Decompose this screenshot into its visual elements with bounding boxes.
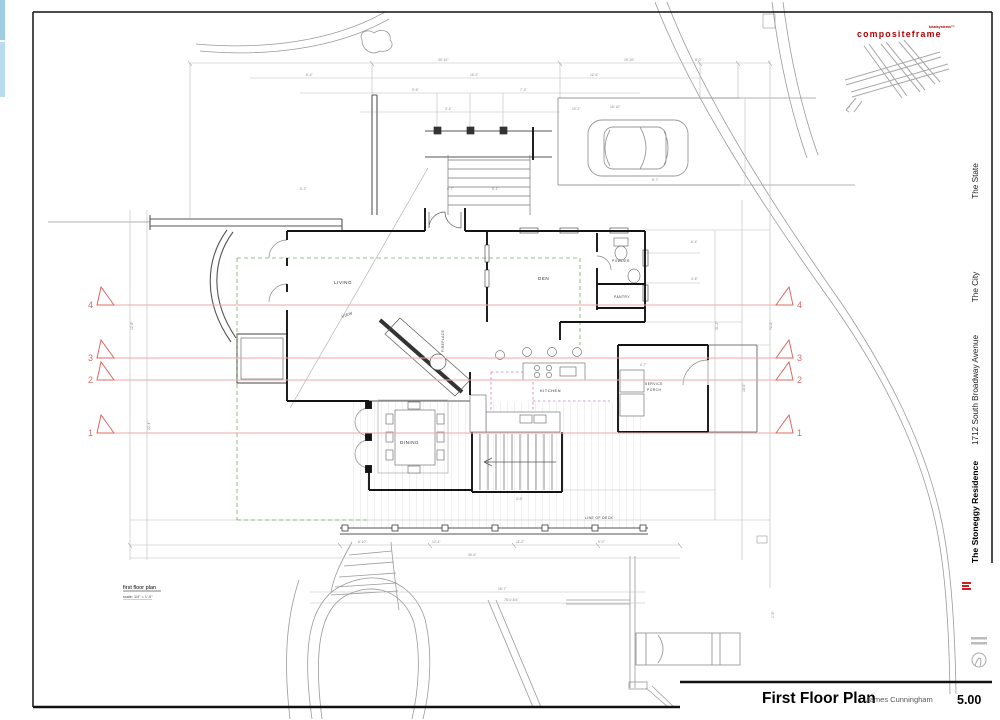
titleblock: First Floor Plan James Cunningham 5.00 — [762, 690, 981, 707]
section-number-right: 1 — [797, 428, 802, 438]
project-address: 1712 South Broadway Avenue — [971, 335, 980, 445]
dimension-label: 5'-2" — [300, 187, 308, 191]
plan-note-label: first floor plan — [123, 585, 156, 591]
washer — [620, 370, 644, 392]
dimension-label: 6'-10" — [358, 540, 367, 544]
dimension-label: 9'-6" — [412, 88, 420, 92]
dimension-label: 12'-6" — [590, 73, 599, 77]
dimension-label: 7'-3" — [520, 88, 528, 92]
dimension-label: 12'-4" — [432, 540, 441, 544]
brand-name: compositeframe — [857, 29, 942, 39]
dimension-label: 3'-6" — [691, 277, 699, 281]
shrub — [361, 30, 392, 52]
sheet-number: 5.00 — [957, 693, 981, 707]
dimension-label: 72'-8" — [769, 321, 773, 330]
room-label: PANTRY — [614, 295, 630, 299]
plan-title: First Floor Plan — [762, 690, 876, 707]
section-flag-right — [776, 362, 793, 380]
dimension-label: 11'-2" — [516, 540, 525, 544]
project-residence: The Stoneggy Residence — [970, 461, 980, 563]
dimension-label: 10'-2" — [572, 107, 581, 111]
drawing-sheet: 44332211 LIVINGVIEWDENPOWDERPANTRYKITCHE… — [0, 0, 1000, 720]
view-sight-line — [290, 168, 428, 408]
fan-steps — [331, 551, 398, 595]
dining-table — [395, 410, 435, 465]
room-label: LIVING — [334, 280, 352, 285]
toilet — [615, 246, 627, 260]
section-flag-right — [776, 287, 793, 305]
project-state: The State — [971, 163, 980, 199]
section-flag-left — [97, 340, 114, 358]
dimension-label: 9'-0" — [598, 540, 606, 544]
section-number-right: 4 — [797, 300, 802, 310]
project-info: The State The City 1712 South Broadway A… — [962, 163, 987, 667]
section-number-right: 2 — [797, 375, 802, 385]
entry-column — [434, 127, 441, 134]
dimension-label: 12'-8" — [130, 321, 134, 330]
dimension-label: 8'-0" — [695, 58, 703, 62]
dimension-label: 8'-4" — [306, 73, 314, 77]
dimension-label: 31'-2" — [715, 321, 719, 330]
room-label: KITCHEN — [540, 388, 561, 393]
sink — [628, 269, 640, 283]
dryer — [620, 394, 644, 416]
brand-subtext: totalsystems™ — [929, 25, 955, 29]
author: James Cunningham — [866, 695, 933, 704]
driveway-edges — [700, 98, 855, 185]
dimension-label: 6'-4" — [691, 240, 699, 244]
section-flag-left — [97, 287, 114, 305]
car-bottom — [636, 633, 740, 665]
dimension-label: 8'-7" — [652, 178, 660, 182]
section-number-right: 3 — [797, 353, 802, 363]
room-label: FIREPLACE — [441, 330, 445, 352]
room-label: DINING — [400, 440, 419, 445]
room-label: VIEW — [341, 311, 353, 319]
entry-double-door — [429, 212, 461, 228]
dimension-label: 18'-6" — [742, 383, 746, 392]
dimension-label: 30'-6" — [468, 553, 477, 557]
dimension-label: 8'-1" — [492, 187, 500, 191]
dimension-label: 22'-4" — [147, 421, 151, 430]
section-number-left: 4 — [88, 300, 93, 310]
section-number-left: 1 — [88, 428, 93, 438]
room-label: DEN — [538, 276, 549, 281]
section-flag-left — [97, 415, 114, 433]
brand-block: compositeframe totalsystems™ — [845, 25, 955, 112]
plan-note: first floor plan scale: 1/4" = 1'-0" — [123, 585, 161, 600]
project-city: The City — [971, 271, 980, 302]
dimension-label: 3'-6" — [516, 497, 524, 501]
room-label: PORCH — [647, 388, 662, 392]
dimension-label: 1'-6" — [771, 610, 775, 618]
dimension-label: 30'-10" — [438, 58, 449, 62]
room-label: POWDER — [612, 259, 630, 263]
section-number-left: 2 — [88, 375, 93, 385]
section-flag-right — [776, 340, 793, 358]
dimension-label: 4'-7" — [640, 363, 648, 367]
toilet-tank — [614, 238, 628, 246]
site-contours — [48, 2, 956, 719]
architect-monogram — [971, 637, 987, 667]
dimension-label: 16'-7" — [498, 587, 507, 591]
dimension-label: 6'-7" — [447, 187, 455, 191]
brand-sketch — [845, 40, 949, 112]
dimension-label: 78'-0 3/4" — [504, 598, 519, 602]
red-stamp — [962, 582, 971, 590]
fireplace-wall — [380, 320, 462, 392]
room-label: LINE OF DECK — [585, 516, 614, 520]
dimension-label: 19'-10" — [624, 58, 635, 62]
floor-plan-canvas: 44332211 LIVINGVIEWDENPOWDERPANTRYKITCHE… — [0, 0, 1000, 720]
dimension-label: 16'-10" — [610, 105, 621, 109]
car-top — [588, 120, 688, 176]
garden-loop — [308, 578, 430, 719]
section-number-left: 3 — [88, 353, 93, 363]
dimension-label: 3'-4" — [445, 107, 453, 111]
room-label: SERVICE — [645, 382, 663, 386]
dimension-label: 16'-2" — [470, 73, 479, 77]
section-flag-right — [776, 415, 793, 433]
section-flag-left — [97, 362, 114, 380]
plan-note-scale: scale: 1/4" = 1'-0" — [123, 595, 153, 599]
